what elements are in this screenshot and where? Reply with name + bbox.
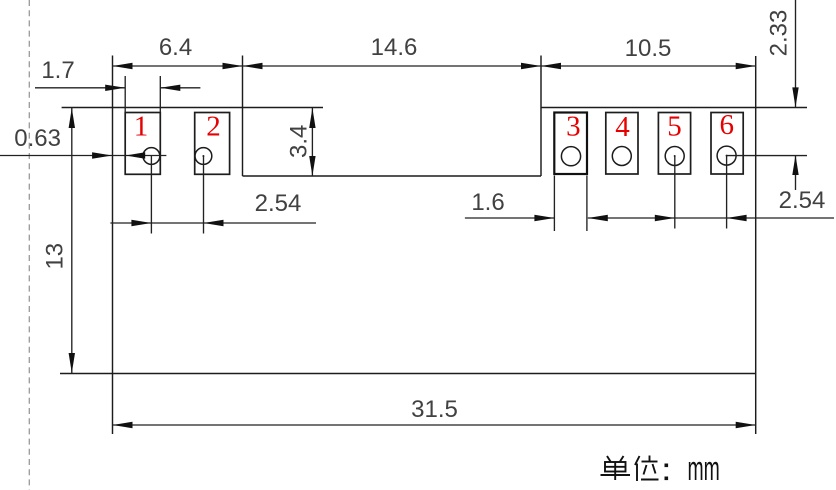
svg-text:1: 1 [134, 111, 149, 143]
svg-text:6: 6 [720, 109, 735, 141]
svg-text:10.5: 10.5 [625, 35, 672, 62]
svg-text:1.6: 1.6 [471, 189, 504, 216]
svg-text:2.33: 2.33 [766, 10, 793, 57]
svg-text:2: 2 [206, 111, 221, 143]
svg-text:mm: mm [688, 449, 720, 487]
svg-text:3.4: 3.4 [286, 125, 313, 158]
svg-text:5: 5 [667, 111, 682, 143]
svg-text:31.5: 31.5 [411, 396, 458, 423]
svg-text:1.7: 1.7 [41, 57, 74, 84]
svg-text:2.54: 2.54 [255, 190, 302, 217]
svg-text:3: 3 [566, 111, 581, 143]
svg-text:4: 4 [615, 111, 630, 143]
svg-text:6.4: 6.4 [159, 34, 192, 61]
svg-text:13: 13 [42, 243, 69, 270]
svg-text:0.63: 0.63 [14, 125, 61, 152]
svg-text:2.54: 2.54 [779, 187, 826, 214]
svg-text:14.6: 14.6 [371, 34, 418, 61]
